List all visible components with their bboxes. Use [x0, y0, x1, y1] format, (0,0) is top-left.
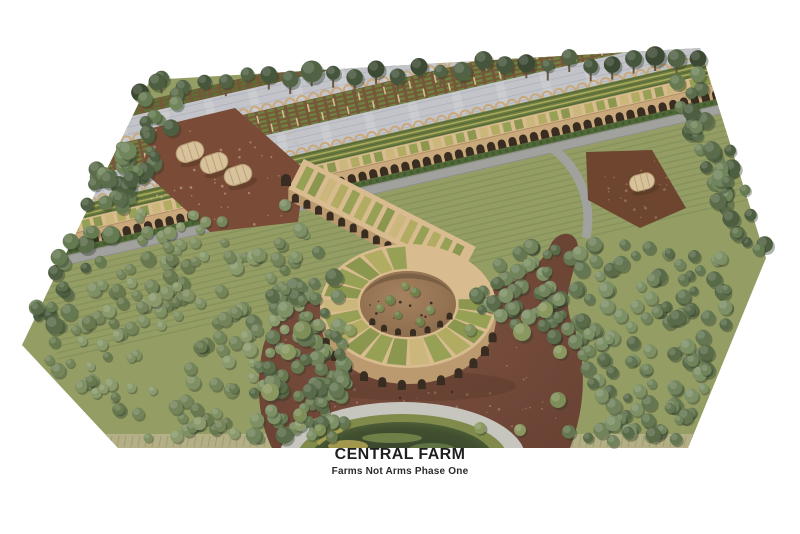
farm-rendering-svg: [0, 0, 800, 534]
render-page: CENTRAL FARM Farms Not Arms Phase One: [0, 0, 800, 534]
farm-rendering: CENTRAL FARM Farms Not Arms Phase One: [0, 0, 800, 534]
